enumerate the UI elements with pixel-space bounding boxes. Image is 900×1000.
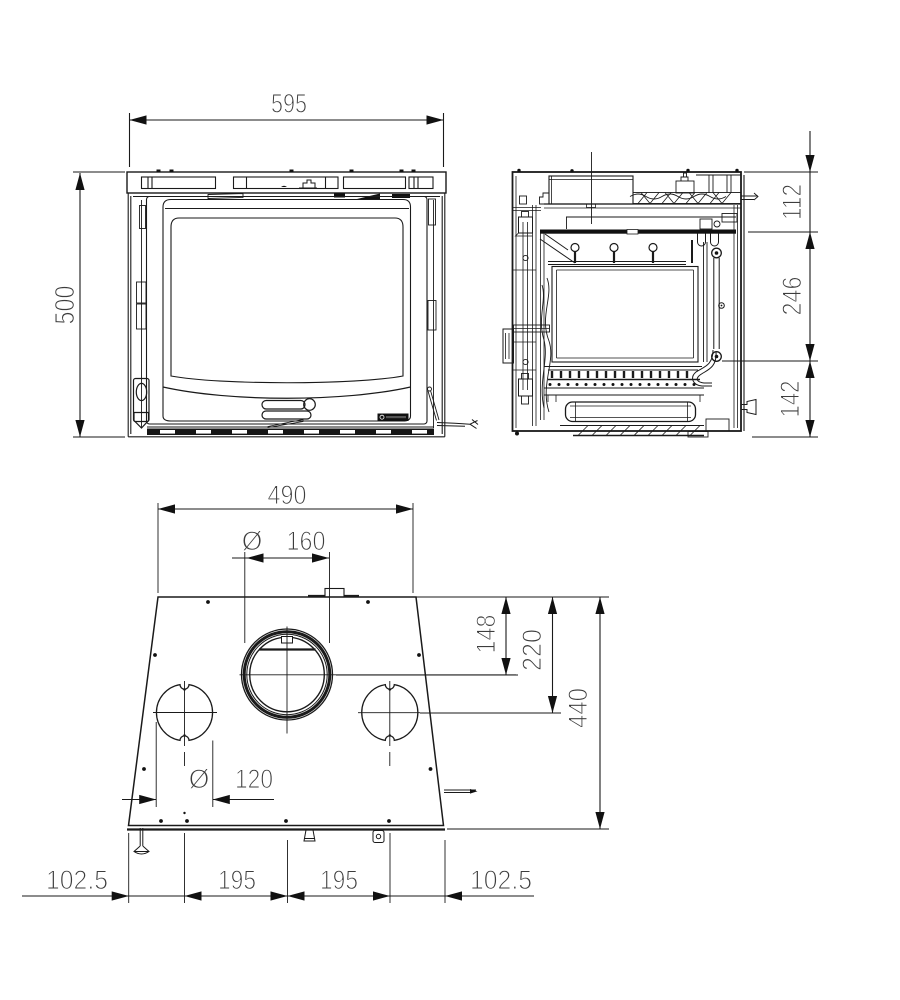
svg-text:440: 440 [563,688,593,728]
svg-text:220: 220 [517,629,547,671]
svg-text:120: 120 [235,764,273,794]
svg-text:148: 148 [471,615,501,654]
svg-text:Ø: Ø [242,526,263,556]
svg-text:246: 246 [777,277,807,316]
svg-text:102.5: 102.5 [470,865,532,895]
svg-text:595: 595 [271,89,307,119]
svg-text:142: 142 [775,381,805,418]
svg-text:160: 160 [287,526,326,556]
svg-text:Ø: Ø [189,764,210,794]
svg-text:490: 490 [268,480,307,510]
svg-text:102.5: 102.5 [46,865,108,895]
svg-text:112: 112 [777,184,807,220]
svg-text:500: 500 [49,286,80,325]
svg-text:195: 195 [320,865,358,895]
svg-text:195: 195 [218,865,256,895]
